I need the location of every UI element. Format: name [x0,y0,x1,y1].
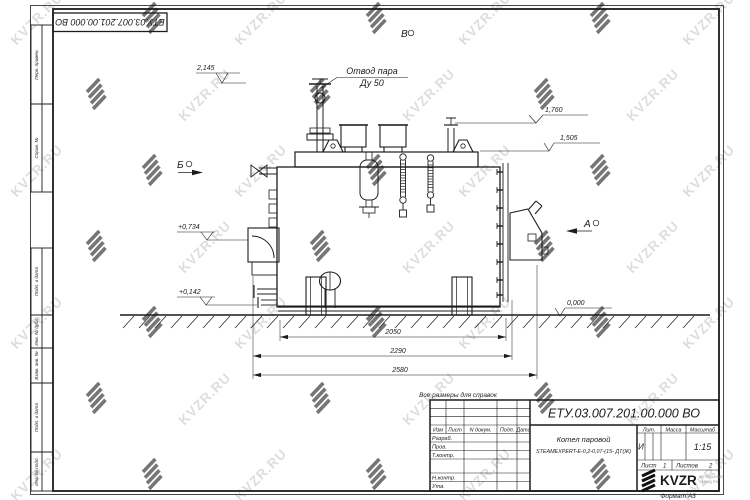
level-gauge-1 [400,154,407,217]
kvzr-logo-sub2: ЗАВОД.РФ [699,480,718,484]
margin-label-sprav: Справ. № [34,138,39,159]
watermark-logo-icon [84,231,108,261]
view-label-b: Б [177,160,184,171]
watermark-logo-icon [532,79,556,109]
watermark-logo-icon [588,3,612,33]
watermark-text: KVZR.RU [680,142,738,200]
dimension-value: 2580 [391,367,408,374]
elevation-value: 2,145 [196,65,215,72]
tb-listov-value: 2 [708,464,713,470]
support-leg-right [452,277,472,315]
tb-header-izm: Изм [433,428,443,434]
watermark-logo-icon [364,155,388,185]
tb-header-data: Дата [515,428,530,434]
lifting-lug-left [323,140,343,152]
view-label-v: В [401,29,408,40]
reference-note: Все размеры для справок [419,391,498,399]
watermark-logo-icon [364,3,388,33]
watermark-logo-icon [588,459,612,489]
kvzr-logo-text: KVZR [660,473,697,488]
tb-header-list: Лист [447,428,462,434]
tb-lit-header: Лит. [642,428,656,434]
watermark-text: KVZR.RU [456,142,514,200]
watermark-text: KVZR.RU [232,142,290,200]
watermark-logo-icon [84,79,108,109]
rear-bracket [510,201,548,260]
left-nozzles [269,190,277,227]
tb-row-nkontr: Н.контр. [432,476,456,482]
watermark-logo-icon [84,383,108,413]
watermark-text: KVZR.RU [176,370,234,428]
stamp-doc-number: ЕТУ.03.007.201.00.000 ВО [55,17,164,27]
elevation-value: 1,760 [545,107,563,114]
steam-outlet-label-line2: Ду 50 [359,78,383,88]
margin-label-inv-dubl: Инв. № дубл. [34,317,39,345]
watermark-text: KVZR.RU [400,218,458,276]
watermark-logo-icon [140,155,164,185]
support-leg-left [306,277,326,315]
kvzr-logo-sub1: КОТЕЛЬНЫЙ [699,475,723,479]
margin-strip: Перв. примен. Справ. № Подп. и дата Инв.… [31,25,53,491]
view-label-a: А [583,219,591,230]
rear-flange-strip [497,163,508,302]
tb-massa-header: Масса [666,428,682,434]
watermark-text: KVZR.RU [680,0,738,48]
top-hatch-box-1 [339,125,368,152]
watermark-logo-icon [588,155,612,185]
tb-row-utv: Утв. [431,484,445,490]
tb-scale-value: 1:15 [694,442,713,452]
watermark-text: KVZR.RU [400,66,458,124]
drawing-sheet: KVZR.RUKVZR.RUKVZR.RUKVZR.RUKVZR.RUKVZR.… [0,0,750,500]
margin-label-inv-podl: Инв. № подл. [34,457,39,486]
watermark-text: KVZR.RU [680,294,738,352]
watermark-text: KVZR.RU [456,294,514,352]
burner-assembly [248,228,279,275]
tb-row-razrab: Разраб. [432,436,452,442]
margin-label-perv: Перв. примен. [34,49,39,80]
tb-list-label: Лист [640,464,656,470]
lifting-lug-right [453,140,473,152]
top-hatch-box-2 [378,125,408,152]
dimension-value: 2050 [384,329,401,336]
margin-label-vzam: Взам. инв. № [34,351,39,379]
tb-listov-label: Листов [675,464,698,470]
elevation-value: 1,505 [560,135,578,142]
tb-list-value: 1 [663,464,666,470]
watermark-text: KVZR.RU [176,66,234,124]
watermark-text: KVZR.RU [232,0,290,48]
tb-row-prov: Пров. [432,445,447,451]
tb-row-tkontr: Т.контр. [432,453,455,459]
watermark-text: KVZR.RU [624,66,682,124]
elevation-value: 0,000 [567,300,585,307]
tb-header-podp: Подп. [500,428,514,434]
boiler-drawing-canvas: KVZR.RUKVZR.RUKVZR.RUKVZR.RUKVZR.RUKVZR.… [0,0,750,500]
watermark-text: KVZR.RU [624,218,682,276]
watermark-logo-icon [308,231,332,261]
elevation-1760: 1,760 [455,107,588,123]
watermark-logo-icon [364,459,388,489]
watermark-text: KVZR.RU [232,294,290,352]
tb-lit-value: И [638,443,644,452]
tb-doc-number: ЕТУ.03.007.201.00.000 ВО [548,407,700,421]
margin-label-podp1: Подп. и дата [34,267,39,296]
tb-product-name: Котел паровой [557,435,612,444]
tb-product-model: STEAMEXPERT-E-0,2-0,07-(15- ДТ(Ж) [536,449,631,455]
elevation-0142: +0,142 [177,289,257,305]
elevation-value: +0,142 [179,289,201,296]
kvzr-logo-icon [642,470,655,491]
watermark-text: KVZR.RU [456,0,514,48]
margin-label-podp2: Подп. и дата [34,403,39,432]
level-gauge-2 [427,155,434,212]
left-drain-valves [254,285,277,308]
tb-header-ndokum: N докум. [470,428,492,434]
steam-outlet-label-line1: Отвод пара [346,66,397,76]
format-label: Формат А3 [660,493,696,500]
dimension-value: 2290 [389,348,406,355]
steam-collector [295,152,478,167]
separator-vessel [359,152,379,218]
tb-masshtab-header: Масштаб [690,428,716,434]
watermark-logo-icon [140,459,164,489]
watermark-logo-icon [308,383,332,413]
elevation-value: +0,734 [178,224,200,231]
